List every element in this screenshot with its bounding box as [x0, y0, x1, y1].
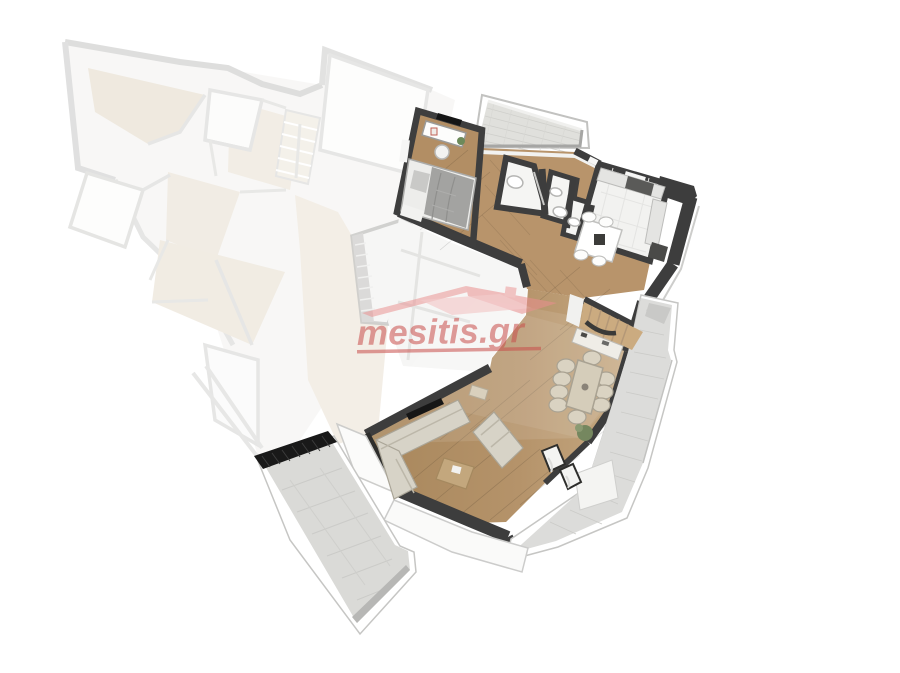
svg-text:mesitis.gr: mesitis.gr	[356, 311, 526, 353]
